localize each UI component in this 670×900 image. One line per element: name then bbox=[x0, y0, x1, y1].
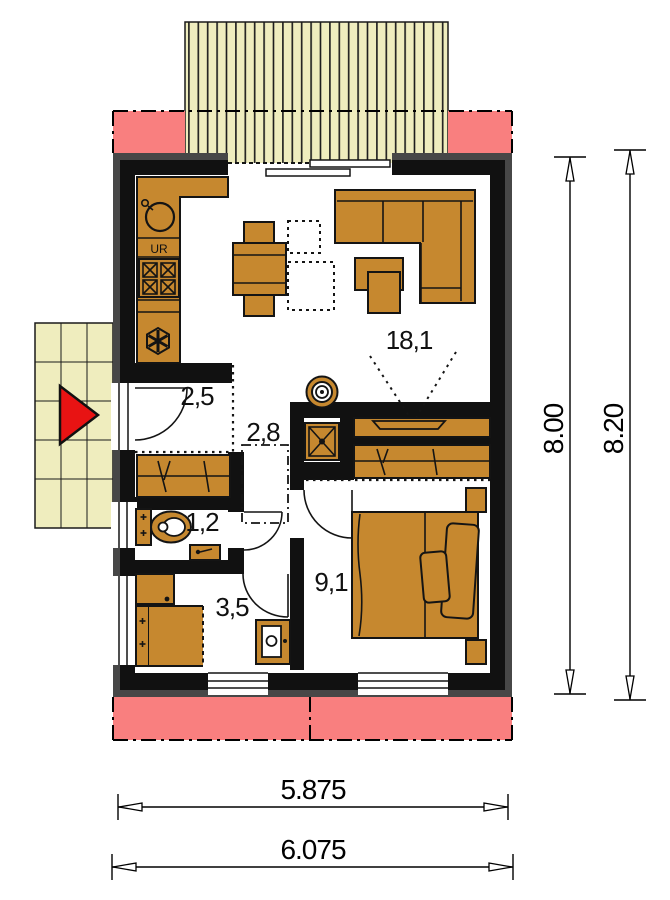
dim-width-inner: 5.875 bbox=[280, 774, 345, 805]
stove-icon bbox=[139, 259, 179, 297]
room-label-wc: 1,2 bbox=[185, 507, 219, 537]
overhang-top-right bbox=[448, 111, 512, 153]
bed bbox=[352, 512, 479, 638]
washing-machine-icon bbox=[136, 574, 174, 604]
wc-window bbox=[111, 502, 137, 548]
floor-plan-page: UR bbox=[0, 0, 670, 900]
overhang-bottom bbox=[113, 697, 512, 740]
room-label-bedroom: 9,1 bbox=[314, 567, 348, 597]
nightstand bbox=[466, 488, 486, 512]
room-label-corridor: 2,8 bbox=[246, 417, 280, 447]
dim-width-outer: 6.075 bbox=[280, 834, 345, 865]
dishwasher-label: UR bbox=[150, 242, 168, 256]
bedroom-furniture bbox=[352, 445, 490, 664]
dining-table bbox=[233, 243, 286, 295]
bathroom-window bbox=[111, 576, 137, 665]
sliding-panel bbox=[266, 169, 350, 176]
wood-stove-icon bbox=[307, 377, 338, 408]
room-label-hall: 2,5 bbox=[180, 381, 214, 411]
washbasin-icon bbox=[256, 620, 290, 664]
pillow bbox=[420, 551, 450, 603]
toilet-icon bbox=[136, 509, 191, 545]
chair bbox=[244, 222, 274, 243]
tv-icon bbox=[373, 421, 445, 429]
hall-wardrobe bbox=[137, 455, 230, 497]
overhang-top-left bbox=[113, 111, 185, 153]
dim-height-outer: 8.20 bbox=[598, 403, 629, 454]
entrance-door-opening bbox=[111, 383, 137, 450]
chair bbox=[244, 295, 274, 316]
chimney-shaft-icon bbox=[305, 423, 339, 460]
bedroom-wardrobe bbox=[354, 445, 490, 478]
dim-height-inner: 8.00 bbox=[538, 403, 569, 454]
ottoman bbox=[368, 272, 400, 313]
sliding-panel bbox=[310, 160, 390, 167]
floor-plan-drawing: UR bbox=[0, 0, 670, 900]
washbasin-small-icon bbox=[190, 545, 220, 560]
shower-icon bbox=[136, 606, 203, 666]
side-terrace bbox=[35, 323, 113, 528]
top-deck bbox=[185, 22, 448, 163]
room-label-bathroom: 3,5 bbox=[215, 592, 249, 622]
nightstand bbox=[466, 640, 486, 664]
room-label-living: 18,1 bbox=[386, 325, 433, 355]
